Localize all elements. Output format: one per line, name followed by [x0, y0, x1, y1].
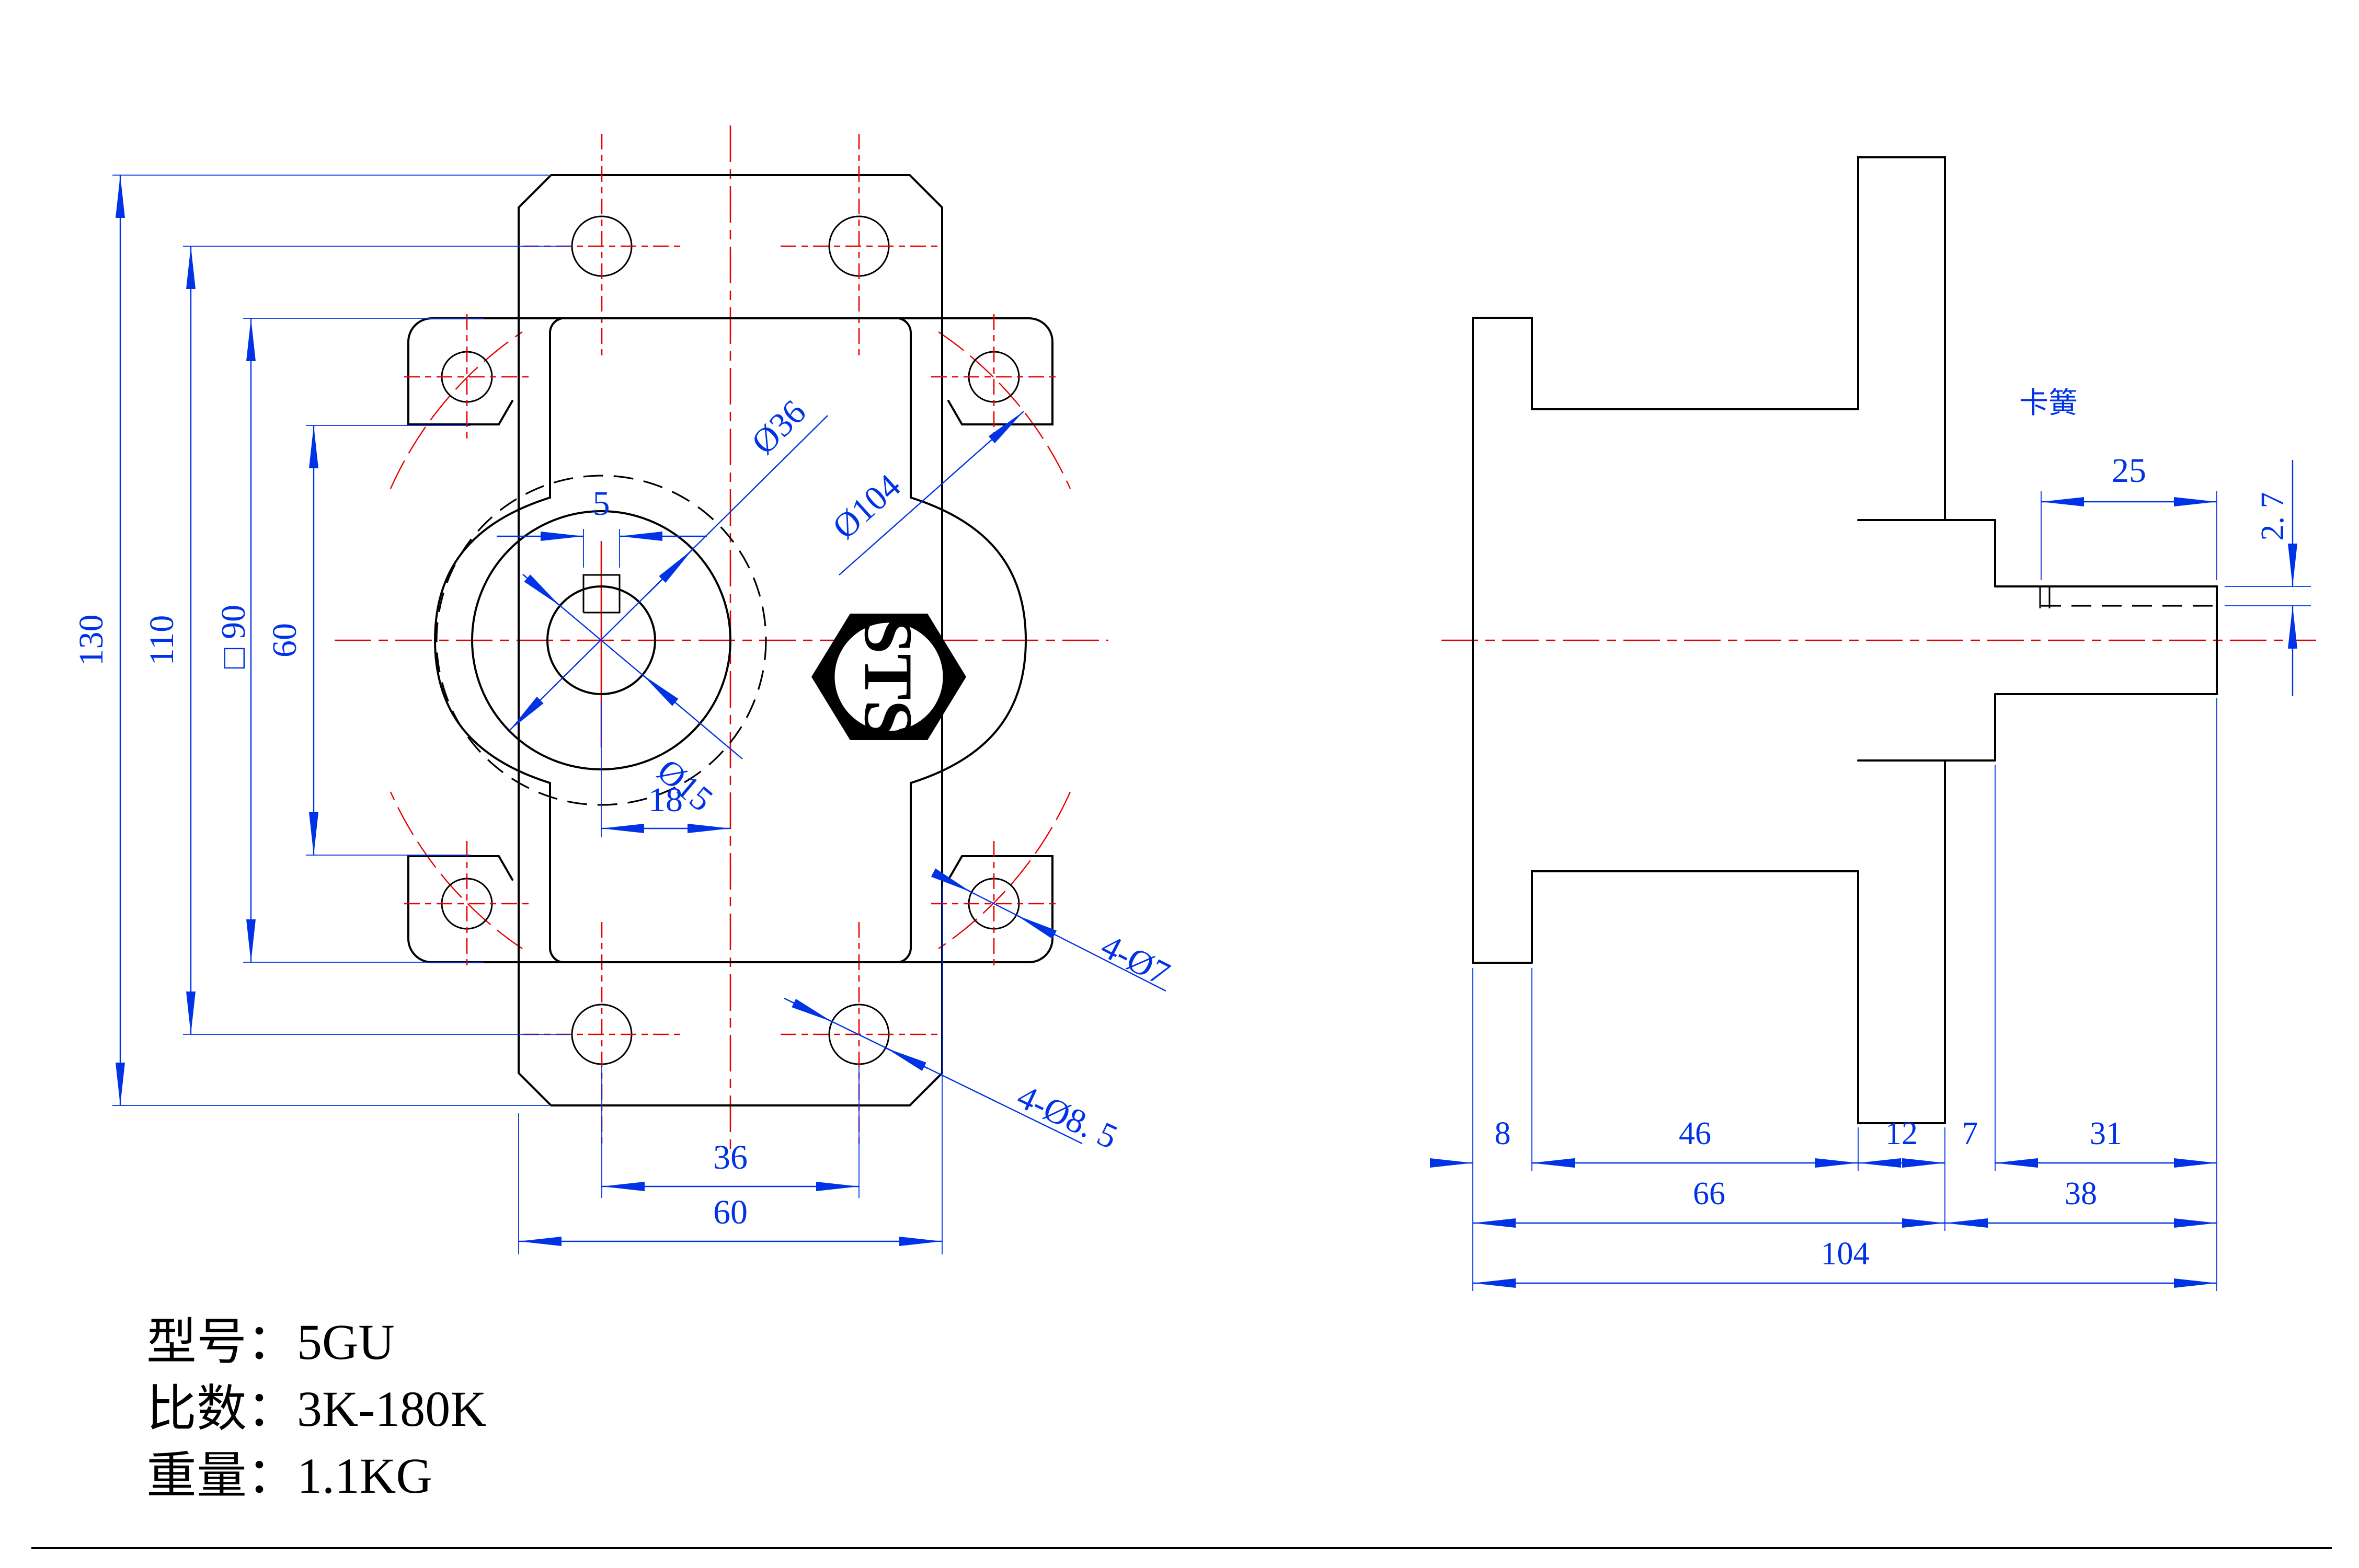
side-dimensions: 25 2. 7 卡簧 8 46 12 7 31 66 — [1436, 387, 2311, 1291]
barrel-bottom — [1532, 871, 1858, 963]
front-view: 5 18 Ø36 Ø104 Ø15 4-Ø7 — [72, 125, 1176, 1254]
dim-left-130: 130 — [72, 615, 110, 666]
title-block: 型号：5GU 比数：3K-180K 重量：1.1KG — [146, 1314, 487, 1504]
rear-plate-bottom — [1858, 760, 1945, 1123]
front-dimensions: 5 18 Ø36 Ø104 Ø15 4-Ø7 — [72, 175, 1176, 1254]
note-ratio: 比数：3K-180K — [146, 1381, 487, 1437]
cad-sheet: 5 18 Ø36 Ø104 Ø15 4-Ø7 — [0, 0, 2359, 1568]
dim-12: 12 — [1885, 1116, 1918, 1151]
dim-dia-36: Ø36 — [745, 393, 814, 462]
dim-bottom-60: 60 — [713, 1193, 748, 1231]
dim-46: 46 — [1679, 1116, 1711, 1151]
dim-dia-104: Ø104 — [826, 467, 908, 546]
dim-2-7: 2. 7 — [2255, 492, 2291, 541]
bolt-arc-bottom-right — [938, 792, 1070, 949]
side-view: 25 2. 7 卡簧 8 46 12 7 31 66 — [1436, 157, 2316, 1291]
dim-38: 38 — [2065, 1176, 2097, 1212]
dim-7: 7 — [1962, 1116, 1978, 1151]
bolt-arc-top-right — [938, 332, 1070, 489]
dim-bottom-36: 36 — [713, 1138, 748, 1177]
front-centerlines — [335, 125, 1108, 1155]
dim-25: 25 — [2112, 452, 2146, 490]
bolt-arc-top-left — [391, 332, 522, 489]
dim-left-90: □ 90 — [214, 605, 253, 668]
callout-4-dia7: 4-Ø7 — [1095, 927, 1176, 994]
note-model: 型号：5GU — [146, 1314, 395, 1370]
dim-left-60: 60 — [266, 623, 304, 658]
logo-text: STS — [850, 616, 927, 739]
dim-104: 104 — [1821, 1236, 1870, 1272]
label-circlip: 卡簧 — [2019, 387, 2078, 420]
dim-keyway-5: 5 — [593, 485, 610, 523]
dim-8: 8 — [1495, 1116, 1511, 1151]
dim-left-110: 110 — [143, 615, 181, 666]
dim-31: 31 — [2090, 1116, 2122, 1151]
dim-66: 66 — [1693, 1176, 1725, 1212]
bolt-arc-bottom-left — [391, 792, 522, 949]
callout-4-dia85: 4-Ø8. 5 — [1012, 1077, 1124, 1156]
rear-plate-top — [1858, 157, 1945, 520]
barrel-top — [1532, 318, 1858, 409]
note-weight: 重量：1.1KG — [146, 1448, 432, 1504]
